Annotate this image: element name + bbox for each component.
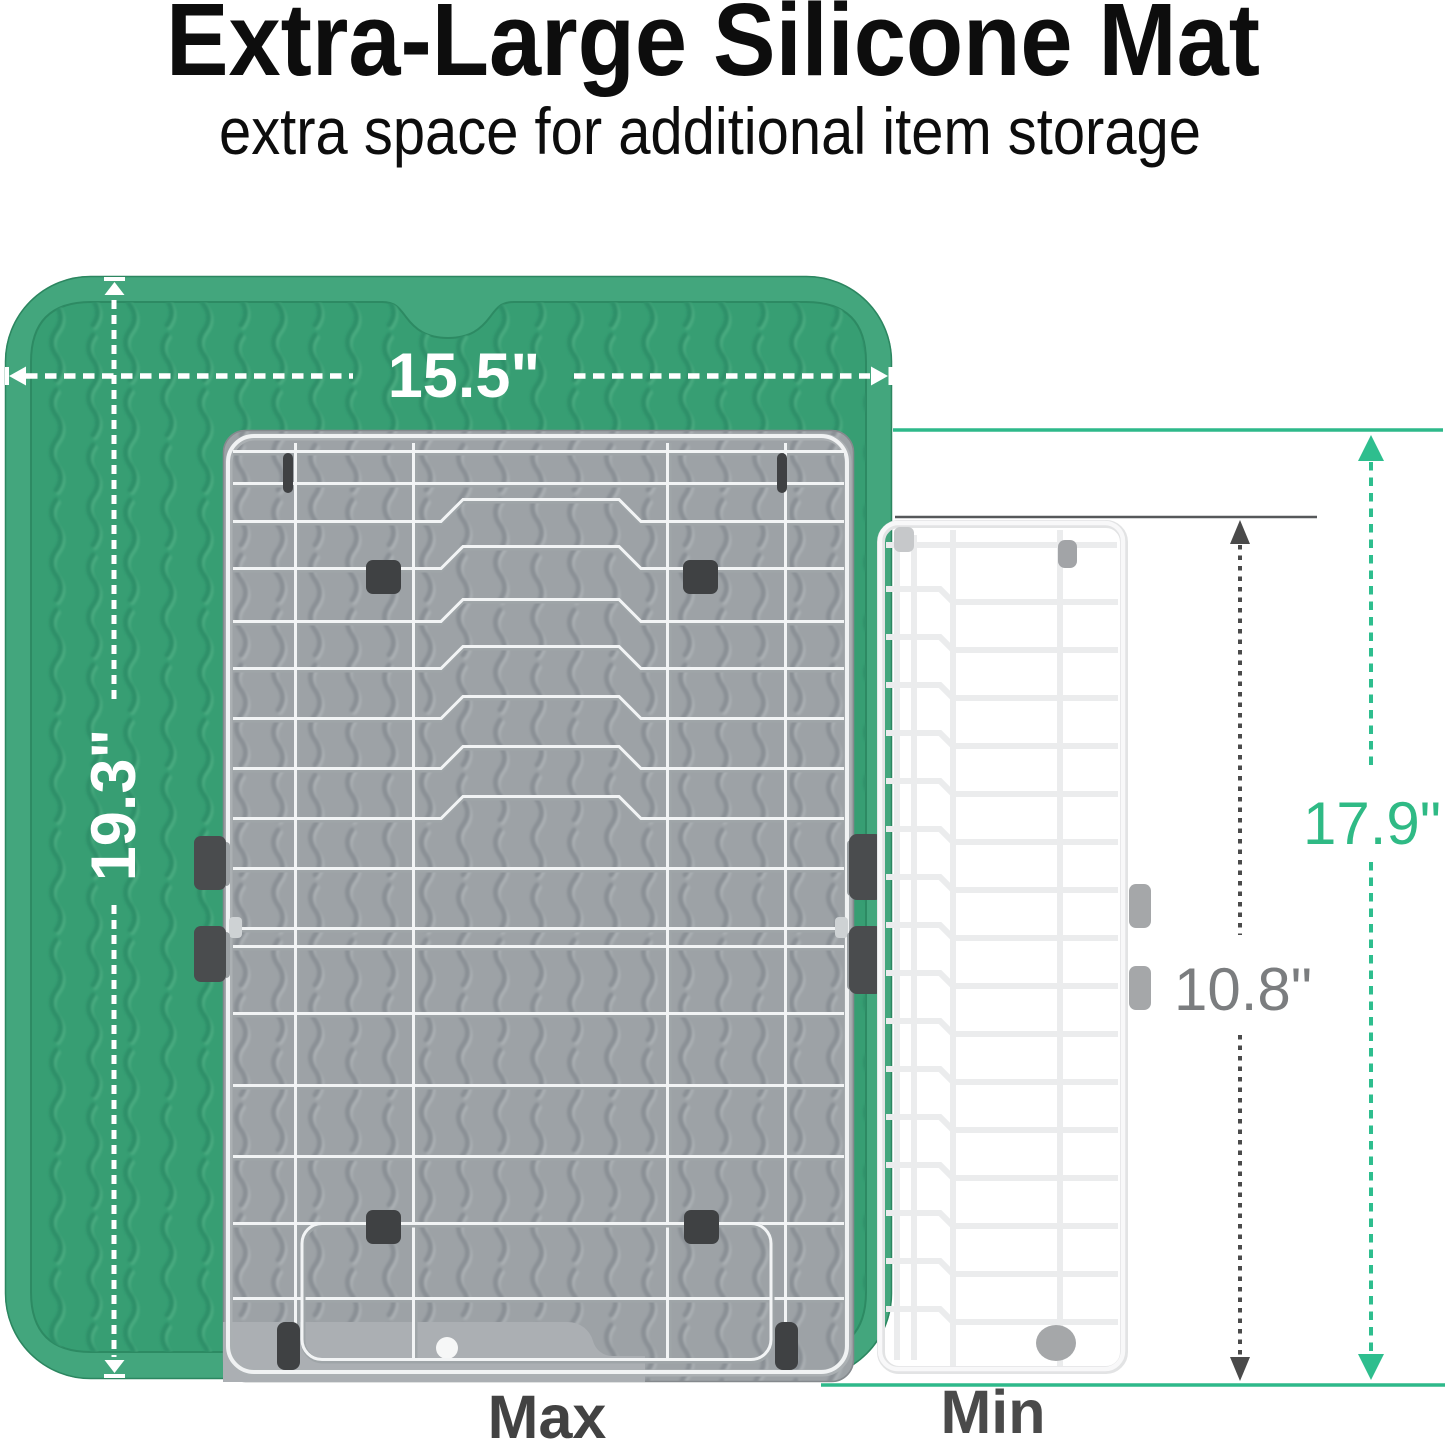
svg-text:17.9": 17.9" (1303, 790, 1441, 857)
svg-text:extra space for additional ite: extra space for additional item storage (219, 94, 1201, 168)
svg-text:Min: Min (940, 1378, 1045, 1441)
svg-text:10.8": 10.8" (1174, 956, 1312, 1023)
svg-text:Max: Max (488, 1383, 607, 1441)
svg-text:15.5": 15.5" (388, 341, 541, 411)
svg-text:19.3": 19.3" (79, 729, 149, 882)
svg-text:Extra-Large Silicone Mat: Extra-Large Silicone Mat (166, 0, 1260, 97)
